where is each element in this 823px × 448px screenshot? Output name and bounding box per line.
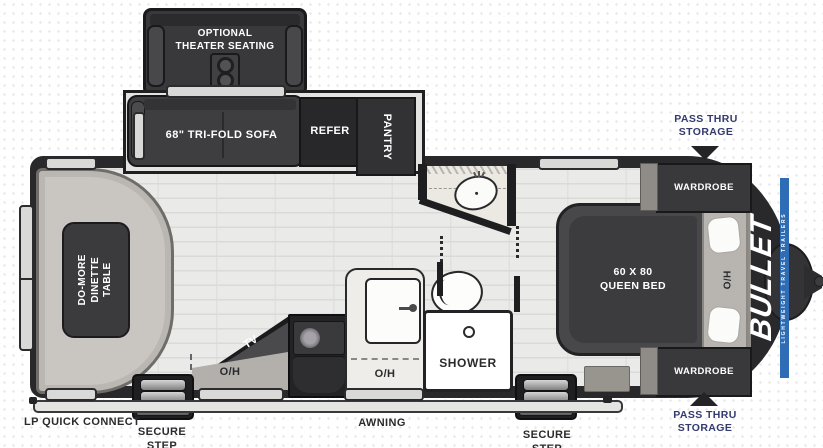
overhead-left-label: O/H [200, 366, 260, 380]
hitch-ball [814, 276, 823, 287]
pass-thru-top-label: PASS THRU STORAGE [664, 113, 748, 139]
stove [288, 314, 350, 398]
shower-label: SHOWER [426, 356, 510, 371]
pass-thru-arrow-up-icon [690, 392, 718, 406]
floorplan-canvas: OPTIONAL THEATER SEATING 68" TRI-FOLD SO… [0, 0, 823, 448]
lp-quick-connect-fitting [29, 397, 37, 404]
drain-dot [474, 191, 478, 195]
window [133, 112, 145, 160]
wardrobe-top-label: WARDROBE [674, 182, 734, 194]
head-overhead-label: H/O [719, 271, 732, 290]
sofa-label: 68" TRI-FOLD SOFA [143, 129, 300, 143]
dinette-table: DO-MORE DINETTE TABLE [62, 222, 130, 338]
overhead-kitchen-label: O/H [347, 368, 423, 382]
pass-thru-arrow-down-icon [691, 146, 719, 160]
kitchen-counter: O/H [345, 268, 425, 392]
pocket-door-track [440, 236, 443, 262]
bathroom-wall [437, 262, 443, 296]
window [538, 157, 620, 170]
theater-backrest [150, 14, 300, 26]
awning-rail [33, 400, 623, 413]
window [19, 205, 34, 351]
window [344, 388, 424, 401]
pantry: PANTRY [356, 97, 416, 176]
vanity-tile-band [422, 166, 512, 174]
pocket-door-track [516, 226, 519, 258]
counter-dashed-divider [351, 358, 419, 360]
dinette-table-label: DO-MORE DINETTE TABLE [77, 254, 115, 305]
shower-drain-icon [463, 326, 475, 338]
queen-bed: 60 X 80 QUEEN BED [556, 203, 710, 356]
bathroom-wall [418, 164, 427, 200]
secure-step-left-label: SECURE STEP [121, 426, 203, 448]
pass-thru-bottom-label: PASS THRU STORAGE [663, 409, 747, 435]
refer-label: REFER [310, 125, 349, 139]
refrigerator: REFER [299, 97, 361, 167]
vanity-faucet-icon [474, 169, 484, 177]
window [198, 388, 284, 401]
wardrobe-bottom-label: WARDROBE [674, 366, 734, 378]
secure-step-left [132, 374, 194, 420]
wall-segment [640, 163, 658, 211]
secure-step-right-label: SECURE STEP [506, 429, 588, 448]
window-seam [21, 278, 32, 280]
theater-seating: OPTIONAL THEATER SEATING [143, 8, 307, 96]
brand-tagline-stripe: LIGHTWEIGHT TRAVEL TRAILERS [780, 178, 789, 378]
secure-step-right [515, 374, 577, 420]
oven [293, 356, 345, 393]
brand-logo: BULLET LIGHTWEIGHT TRAVEL TRAILERS [736, 160, 798, 396]
window [166, 85, 286, 98]
bathroom-wall [507, 164, 516, 226]
kitchen-sink [365, 278, 421, 344]
sofa-backrest [144, 99, 296, 110]
wall-segment [640, 347, 658, 395]
faucet-spout [399, 307, 411, 310]
entry-door [584, 366, 630, 392]
burner-icon [300, 328, 320, 348]
pantry-label: PANTRY [379, 113, 393, 159]
bathroom-wall [514, 276, 520, 312]
window [45, 388, 97, 401]
queen-bed-label: 60 X 80 QUEEN BED [600, 266, 666, 292]
theater-seating-label: OPTIONAL THEATER SEATING [162, 28, 288, 53]
awning-label: AWNING [350, 417, 414, 431]
shower: SHOWER [423, 310, 513, 392]
window [45, 157, 97, 170]
awning-rail-end-cap [603, 396, 612, 403]
brand-name: BULLET [745, 175, 779, 381]
tri-fold-sofa: 68" TRI-FOLD SOFA [127, 95, 304, 167]
